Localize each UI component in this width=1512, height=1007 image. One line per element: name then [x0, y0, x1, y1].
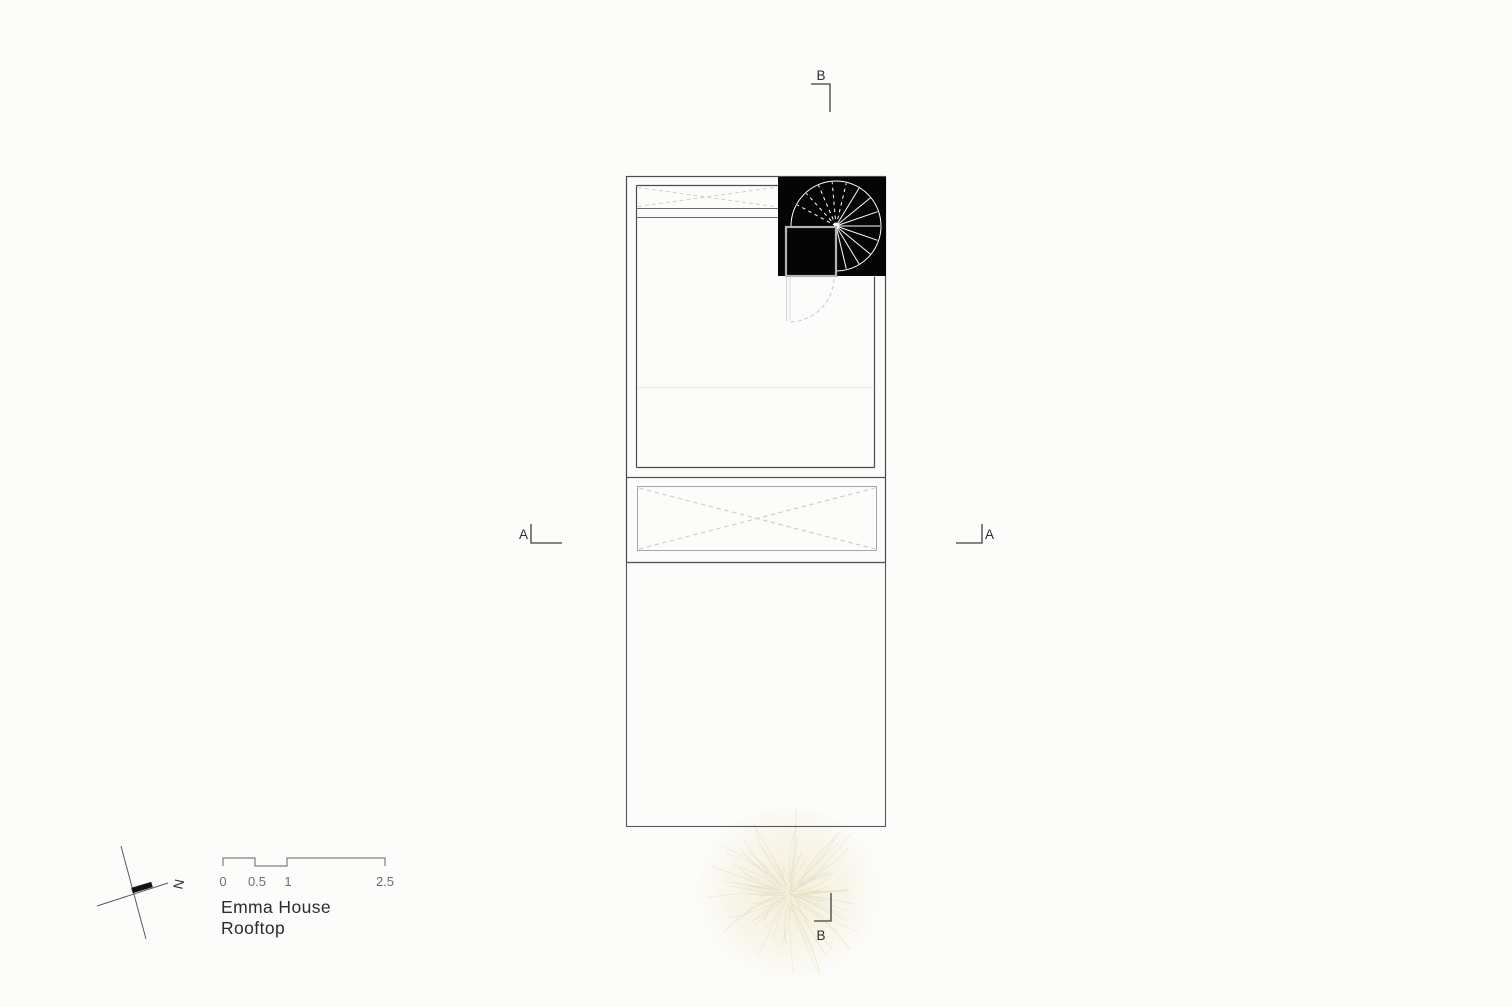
scale-tick-2-5: 2.5 [376, 874, 394, 889]
plan-drawing: B B A A N 0 0.5 1 2.5 [0, 0, 1512, 1007]
middle-band [627, 478, 886, 563]
north-arrow: N [97, 846, 187, 939]
scale-bar: 0 0.5 1 2.5 [219, 858, 394, 889]
rooftop-plan-canvas: B B A A N 0 0.5 1 2.5 [0, 0, 1512, 1007]
section-marker-b-top: B [811, 68, 830, 112]
lower-block [627, 563, 886, 827]
scale-tick-1: 1 [284, 874, 291, 889]
section-marker-a-left: A [519, 524, 562, 543]
section-label-a-left: A [519, 527, 528, 542]
scale-tick-0-5: 0.5 [248, 874, 266, 889]
drawing-title: Rooftop [221, 918, 331, 939]
title-block: Emma House Rooftop [221, 897, 331, 938]
tree-branches [707, 809, 859, 973]
skylight-hatch-top [638, 188, 774, 207]
stair-landing-hatch [786, 227, 836, 276]
north-label: N [170, 878, 187, 891]
section-label-b-top: B [816, 68, 825, 83]
section-label-b-bottom: B [816, 928, 825, 943]
scale-tick-0: 0 [219, 874, 226, 889]
section-label-a-right: A [985, 527, 994, 542]
roof-hatch-panel [638, 487, 877, 551]
stair-door-swing [787, 277, 834, 322]
spiral-stair [778, 177, 886, 276]
project-title: Emma House [221, 897, 331, 918]
section-marker-a-right: A [956, 524, 994, 543]
